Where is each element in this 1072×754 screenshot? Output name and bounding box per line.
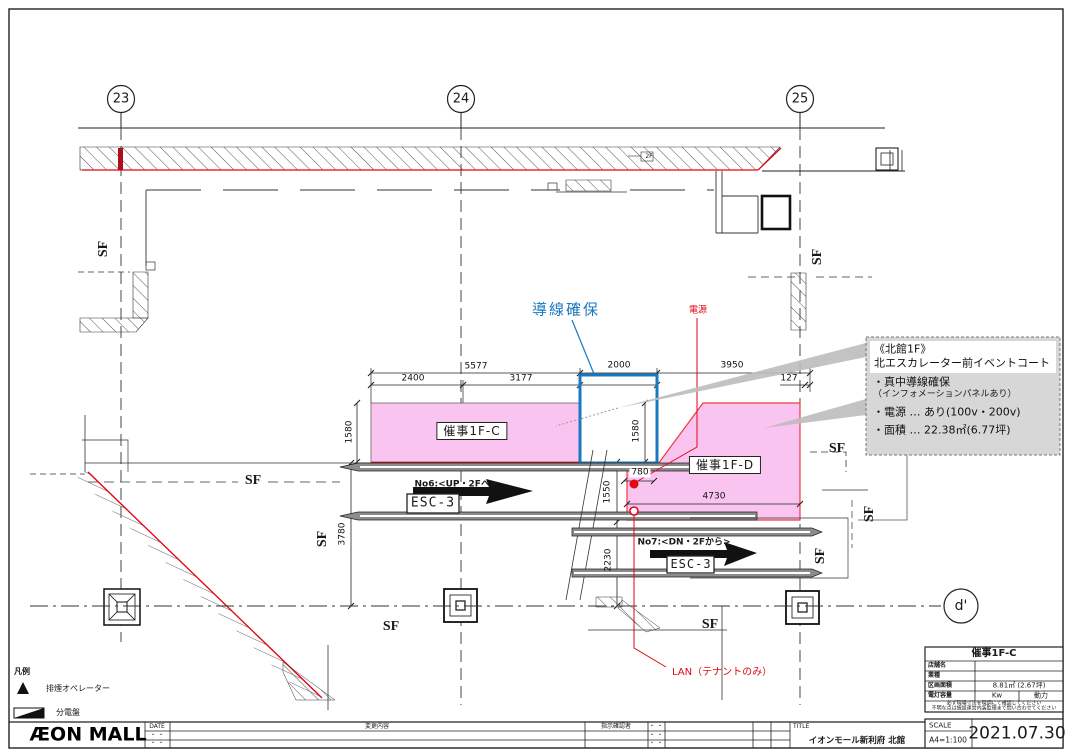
annotation-line3: ・真中導線確保 bbox=[873, 377, 950, 388]
dim-2400: 2400 bbox=[402, 375, 425, 384]
legend-item-smoke-operator: 排煙オペレーター bbox=[46, 685, 110, 693]
sf-label: SF bbox=[863, 506, 877, 522]
annotation-line6: ・面積 … 22.38㎡(6.77坪) bbox=[873, 425, 1011, 436]
sf-label: SF bbox=[702, 618, 718, 632]
floor2-label: 2F bbox=[645, 154, 652, 160]
annotation-line1: 《北館1F》 bbox=[874, 344, 931, 355]
dim-2000: 2000 bbox=[608, 362, 631, 371]
column-symbol bbox=[444, 589, 477, 622]
dim-1580-right: 1580 bbox=[633, 420, 642, 443]
smoke-vent-operator-icon bbox=[17, 682, 29, 694]
info-row-label: 電灯容量 bbox=[928, 693, 952, 699]
title-label: TITLE bbox=[793, 724, 809, 730]
check-dots: ・ ・ bbox=[649, 733, 663, 739]
sf-label: SF bbox=[245, 474, 261, 488]
info-kw-value: Kw bbox=[992, 693, 1002, 700]
dim-5577: 5577 bbox=[465, 363, 488, 372]
esc-no7-label: No7:<DN・2Fから> bbox=[637, 539, 730, 548]
sf-label: SF bbox=[811, 249, 825, 265]
date-header: DATE bbox=[149, 724, 165, 730]
sf-label: SF bbox=[814, 548, 828, 564]
date-dots: ・ ・ bbox=[150, 741, 164, 747]
grid-label-24: 24 bbox=[453, 93, 470, 106]
dim-3780: 3780 bbox=[339, 523, 348, 546]
change-header: 変更内容 bbox=[365, 724, 389, 730]
dim-4730: 4730 bbox=[703, 493, 726, 502]
approver-header: 指示確認者 bbox=[601, 724, 631, 730]
annotation-line5: ・電源 … あり(100v・200v) bbox=[873, 407, 1021, 418]
date-dots: ・ ・ bbox=[150, 733, 164, 739]
date-value: 2021.07.30 bbox=[968, 726, 1065, 743]
sf-label: SF bbox=[829, 442, 845, 456]
area-d-label: 催事1F-D bbox=[689, 456, 761, 474]
check-dots: ・ ・ bbox=[649, 724, 663, 730]
sf-label: SF bbox=[383, 620, 399, 634]
dim-1550: 1550 bbox=[604, 481, 613, 504]
aeon-mall-logo: ÆON MALL bbox=[29, 726, 146, 745]
power-label: 電源 bbox=[689, 307, 707, 316]
esc-no6-label: No6:<UP・2Fへ> bbox=[415, 481, 498, 490]
info-power-type: 動力 bbox=[1034, 693, 1048, 700]
dim-1580-left: 1580 bbox=[346, 421, 355, 444]
info-table-title: 催事1F-C bbox=[972, 649, 1017, 659]
info-note2: 不明な点は施設運営内装監理まで問い合わせてください bbox=[932, 707, 1057, 712]
dim-780: 780 bbox=[629, 469, 650, 478]
check-dots: ・ ・ bbox=[649, 741, 663, 747]
info-row-label: 店舗名 bbox=[928, 663, 946, 669]
scale-value: A4=1:100 bbox=[929, 736, 967, 744]
lan-point bbox=[630, 507, 638, 515]
dim-2230: 2230 bbox=[605, 549, 614, 572]
grid-label-23: 23 bbox=[113, 93, 130, 106]
area-c-label: 催事1F-C bbox=[436, 422, 507, 440]
drawing-title: イオンモール新利府 北館 bbox=[809, 737, 905, 746]
grid-label-25: 25 bbox=[792, 93, 809, 106]
legend-item-distribution-board: 分電盤 bbox=[56, 709, 80, 717]
sf-label: SF bbox=[97, 241, 111, 257]
red-wall-mark bbox=[118, 148, 123, 170]
esc-3-label: ESC-3 bbox=[670, 558, 711, 570]
info-row-label: 業種 bbox=[928, 673, 940, 679]
esc-3-label: ESC-3 bbox=[411, 497, 455, 510]
legend-title: 凡例 bbox=[14, 668, 30, 676]
grid-label-d: d' bbox=[955, 599, 968, 613]
dim-3177: 3177 bbox=[510, 375, 533, 384]
power-point bbox=[630, 480, 639, 489]
info-area-value: 8.81㎡ (2.67坪) bbox=[993, 683, 1046, 690]
dim-3950: 3950 bbox=[721, 362, 744, 371]
scale-label: SCALE bbox=[929, 723, 951, 730]
annotation-line2: 北エスカレーター前イベントコート bbox=[874, 358, 1050, 369]
revision-bar-grid bbox=[145, 722, 790, 748]
route-leader bbox=[572, 320, 594, 374]
dim-127: 127 bbox=[780, 375, 797, 384]
hatched-wall-band bbox=[80, 147, 780, 170]
info-row-label: 区画面積 bbox=[928, 683, 952, 689]
route-keep-label: 導線確保 bbox=[532, 303, 600, 318]
distribution-board-icon bbox=[14, 708, 44, 718]
column-symbol-x bbox=[104, 589, 140, 625]
floor-plan-drawing: 23 24 25 d' 2F SF SF SF SF SF SF SF SF S… bbox=[0, 0, 1072, 754]
wall-block bbox=[762, 196, 790, 229]
annotation-line4: （インフォメーションパネルあり） bbox=[873, 391, 1017, 400]
column-symbol bbox=[786, 591, 819, 624]
route-keep-rect bbox=[580, 375, 657, 463]
red-diagonal-line bbox=[88, 472, 322, 698]
sf-label: SF bbox=[316, 531, 330, 547]
lan-label: LAN（テナントのみ） bbox=[672, 668, 772, 678]
